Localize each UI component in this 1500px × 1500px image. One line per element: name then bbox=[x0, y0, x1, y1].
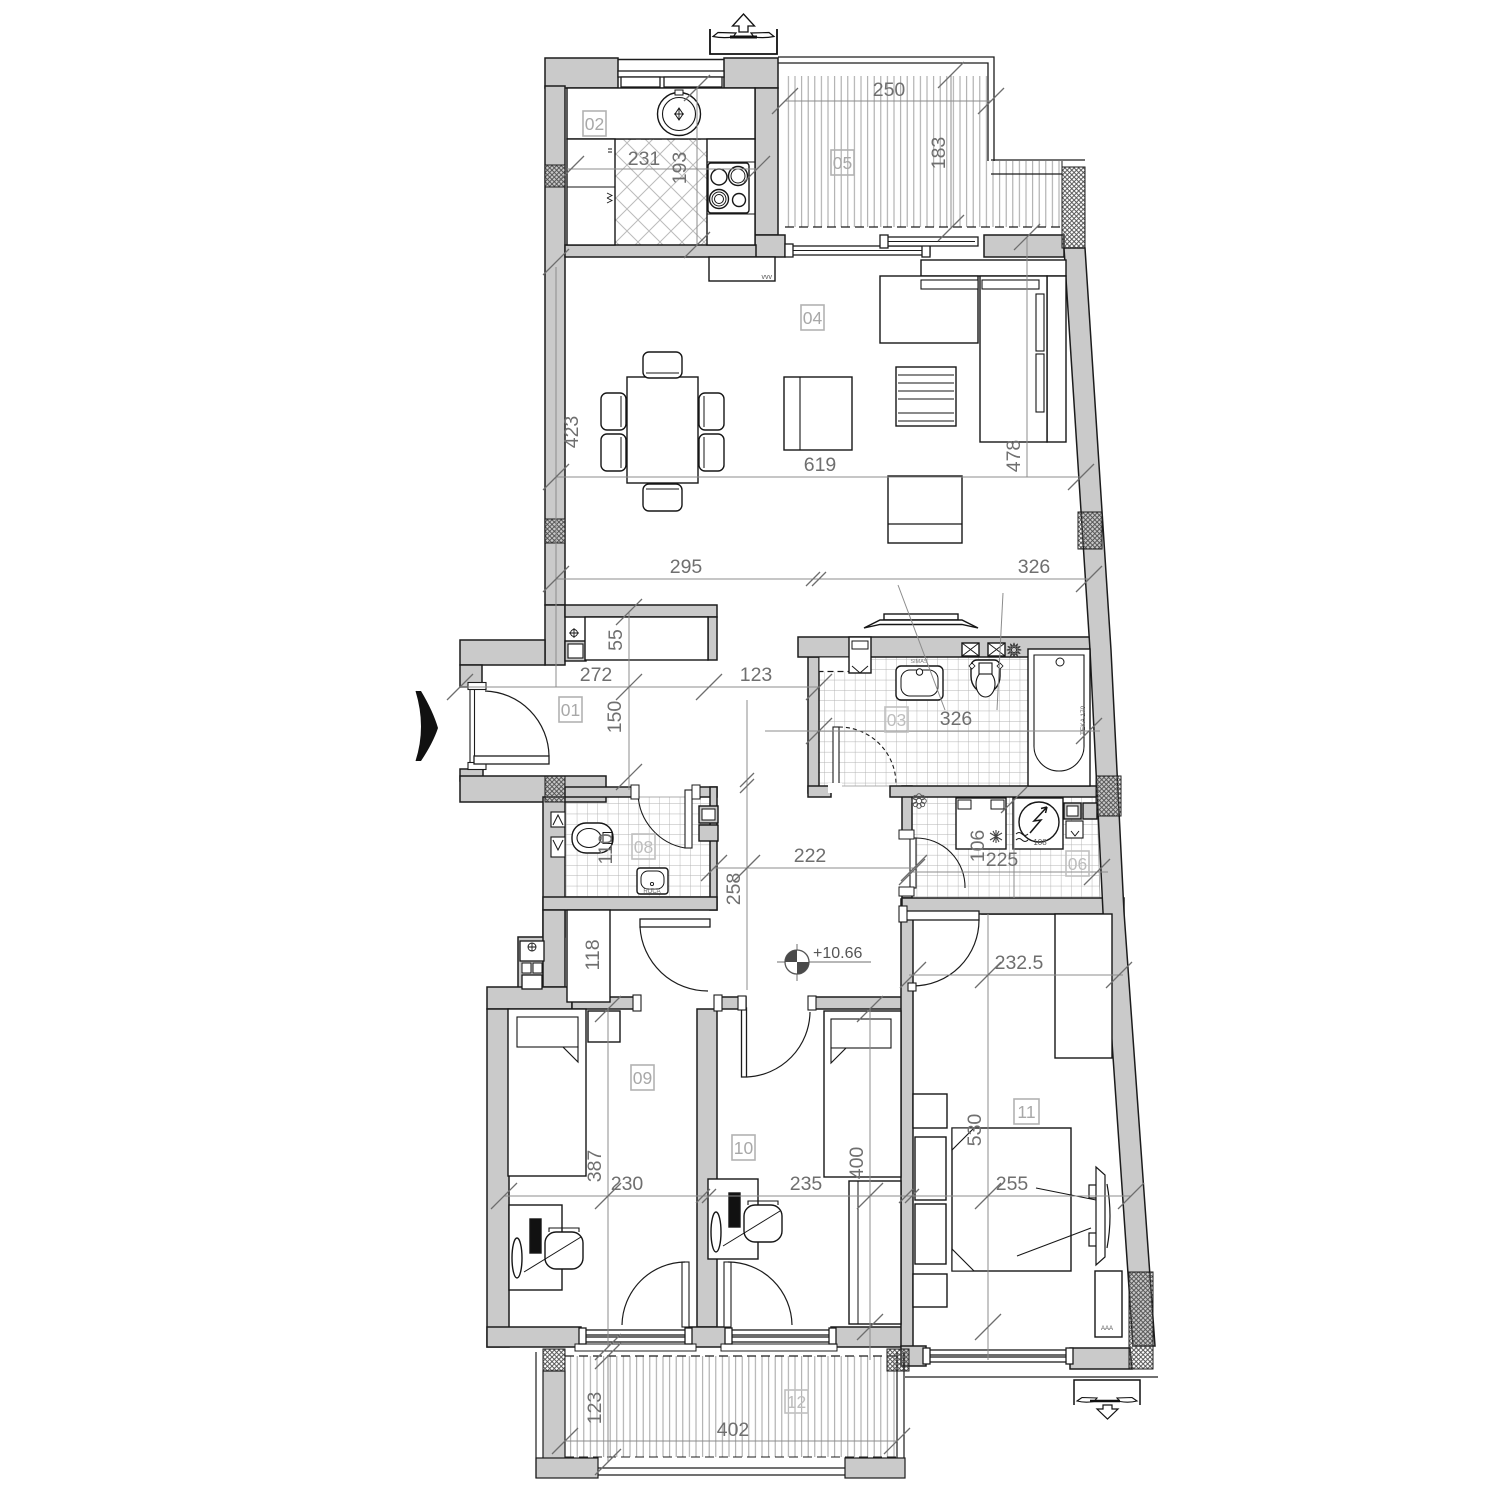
svg-text:06: 06 bbox=[1068, 854, 1087, 874]
svg-text:10: 10 bbox=[734, 1138, 754, 1158]
svg-text:225: 225 bbox=[986, 849, 1019, 871]
svg-text:193: 193 bbox=[669, 152, 691, 185]
svg-text:272: 272 bbox=[580, 664, 613, 686]
svg-text:232.5: 232.5 bbox=[995, 952, 1044, 974]
svg-text:222: 222 bbox=[794, 845, 827, 867]
svg-text:231: 231 bbox=[628, 148, 661, 170]
svg-text:05: 05 bbox=[833, 153, 852, 173]
svg-text:AAA: AAA bbox=[1101, 1326, 1113, 1332]
svg-text:110: 110 bbox=[595, 833, 617, 864]
svg-text:150: 150 bbox=[604, 701, 626, 734]
svg-text:387: 387 bbox=[584, 1150, 606, 1183]
svg-text:258: 258 bbox=[723, 873, 745, 906]
svg-text:530: 530 bbox=[964, 1114, 986, 1147]
svg-text:+10.66: +10.66 bbox=[813, 945, 862, 962]
svg-text:08: 08 bbox=[634, 837, 653, 857]
svg-text:250: 250 bbox=[873, 79, 906, 101]
svg-text:123: 123 bbox=[740, 664, 773, 686]
svg-text:ROCA: ROCA bbox=[643, 889, 660, 895]
svg-text:123: 123 bbox=[584, 1392, 606, 1425]
svg-text:55: 55 bbox=[605, 629, 627, 651]
svg-text:619: 619 bbox=[804, 454, 837, 476]
svg-text:230: 230 bbox=[611, 1173, 644, 1195]
svg-text:183: 183 bbox=[928, 137, 950, 170]
svg-text:423: 423 bbox=[561, 416, 583, 449]
svg-text:326: 326 bbox=[940, 708, 973, 730]
svg-text:vvv: vvv bbox=[762, 274, 773, 281]
svg-text:255: 255 bbox=[996, 1173, 1029, 1195]
svg-text:108: 108 bbox=[1033, 838, 1047, 847]
svg-text:235: 235 bbox=[790, 1173, 823, 1195]
svg-text:09: 09 bbox=[633, 1068, 652, 1088]
svg-text:118: 118 bbox=[582, 939, 604, 970]
svg-text:295: 295 bbox=[670, 556, 703, 578]
svg-text:04: 04 bbox=[803, 308, 823, 328]
svg-text:SIMAS: SIMAS bbox=[910, 659, 927, 665]
svg-text:02: 02 bbox=[585, 114, 604, 134]
svg-text:03: 03 bbox=[887, 710, 906, 730]
svg-text:01: 01 bbox=[561, 700, 580, 720]
svg-text:11: 11 bbox=[1017, 1102, 1035, 1122]
svg-text:326: 326 bbox=[1018, 556, 1051, 578]
svg-text:402: 402 bbox=[717, 1419, 750, 1441]
svg-text:12: 12 bbox=[787, 1392, 806, 1412]
svg-text:400: 400 bbox=[846, 1147, 868, 1180]
svg-text:478: 478 bbox=[1003, 440, 1025, 473]
